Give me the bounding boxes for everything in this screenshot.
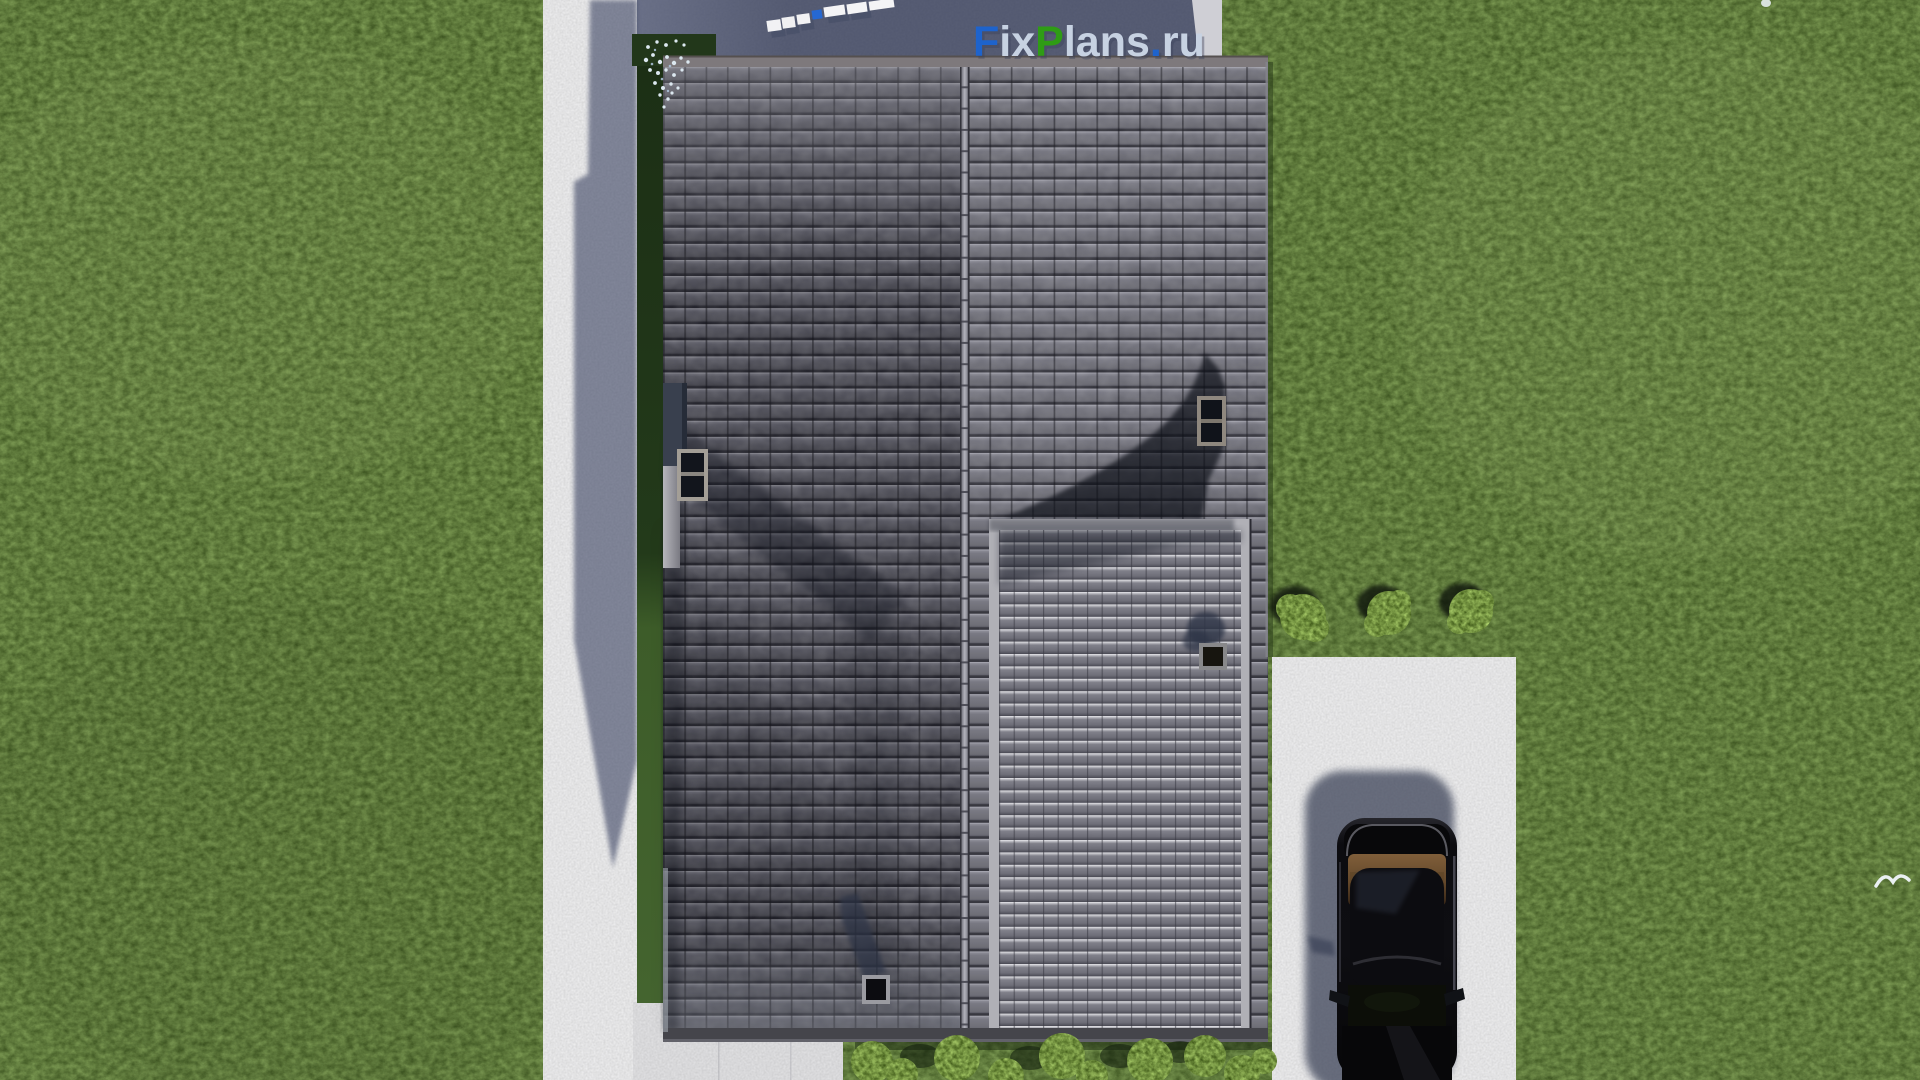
svg-text:FixPlans.ru: FixPlans.ru [973, 18, 1205, 66]
